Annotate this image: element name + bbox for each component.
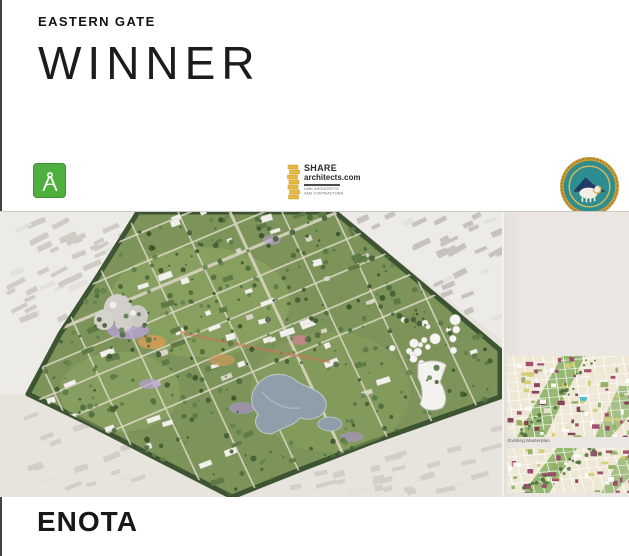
share-logo-domain: architects.com (304, 174, 375, 182)
thumbnail-existing-masterplan (507, 356, 629, 437)
compass-icon (39, 168, 61, 194)
header: EASTERN GATE WINNER (38, 14, 261, 90)
share-logo-name: SHARE (304, 164, 375, 173)
share-tagline-line1: LINK ARCHITECTS (304, 187, 343, 192)
architecture-competition-logo (33, 163, 66, 198)
stacked-blocks-icon (287, 164, 300, 201)
studio-name: ENOTA (37, 506, 138, 538)
ram-emblem-icon (559, 156, 620, 217)
thumbnail-caption: Existing Masterplan (508, 438, 550, 443)
landmark-tower (418, 361, 446, 410)
project-eyebrow: EASTERN GATE (38, 14, 261, 29)
footer: ENOTA (37, 506, 138, 538)
thumbnail-proposed-masterplan (507, 448, 629, 493)
page-title: WINNER (38, 36, 261, 90)
right-panel: Existing Masterplan (504, 212, 629, 497)
share-logo-rule (304, 184, 340, 186)
share-tagline-line2: AND CONTRACTORS (304, 191, 343, 196)
share-architects-logo: SHARE architects.com LINK ARCHITECTS AND… (287, 164, 375, 204)
masterplan-aerial-render (0, 212, 502, 497)
city-emblem (559, 156, 620, 217)
